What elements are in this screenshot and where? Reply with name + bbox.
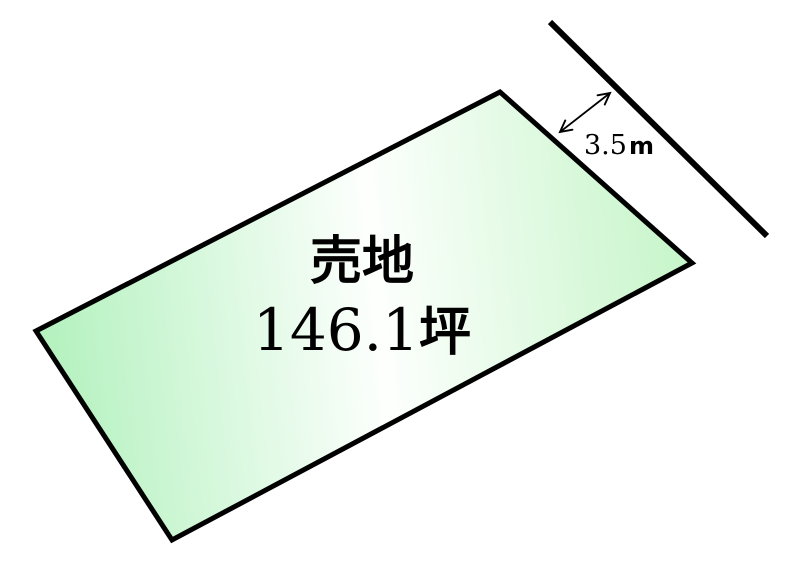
plot-label: 売地 [310,232,414,292]
dimension-unit: m [629,132,654,160]
diagram-canvas: 売地 146.1坪 3.5m [0,0,804,566]
dimension-label: 3.5m [584,130,654,161]
plot-area: 146.1坪 [253,296,471,364]
dimension-value: 3.5 [584,130,627,161]
land-plot-diagram: 売地 146.1坪 3.5m [0,0,804,566]
plot-area-unit: 坪 [419,303,471,363]
plot-area-value: 146.1 [253,296,419,364]
